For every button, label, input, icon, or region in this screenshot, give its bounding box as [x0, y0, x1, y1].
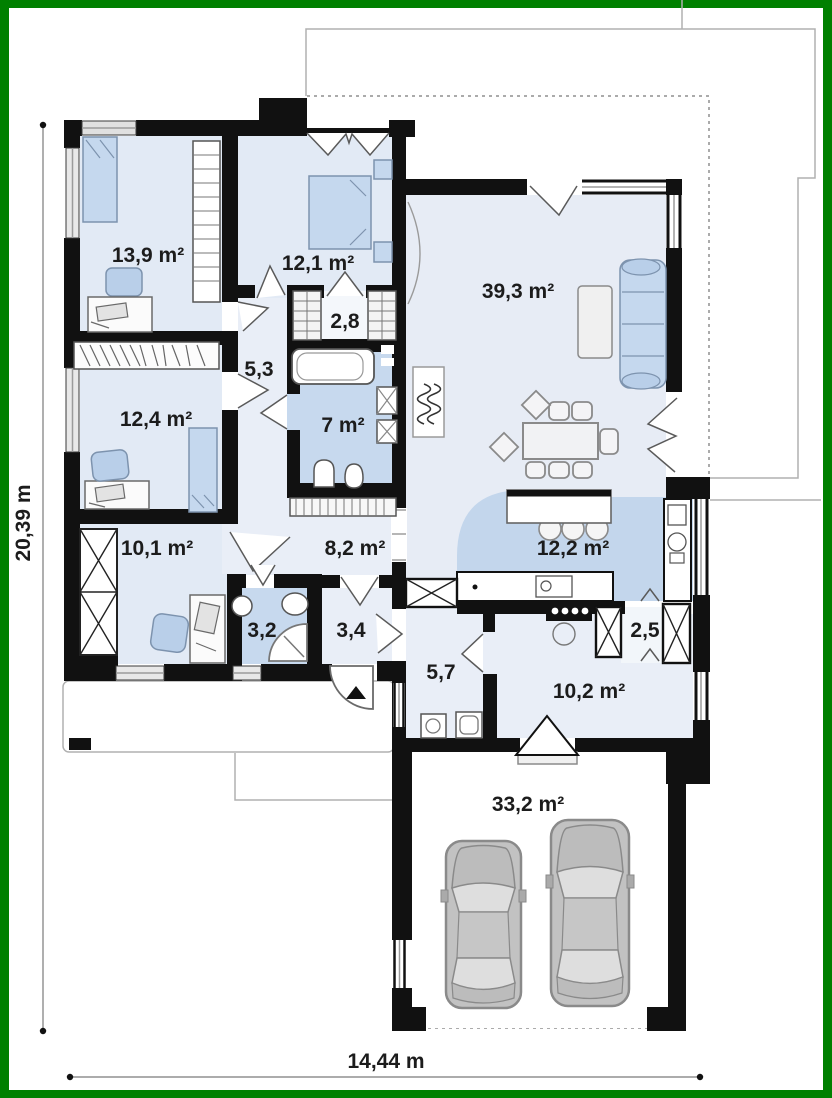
- svg-text:2,5: 2,5: [630, 619, 660, 642]
- svg-text:13,9 m²: 13,9 m²: [112, 244, 184, 267]
- svg-text:7 m²: 7 m²: [321, 414, 364, 437]
- svg-text:8,2 m²: 8,2 m²: [325, 537, 386, 560]
- svg-text:5,3: 5,3: [244, 358, 273, 381]
- svg-text:3,2: 3,2: [247, 619, 276, 642]
- svg-text:10,2 m²: 10,2 m²: [553, 680, 625, 703]
- svg-text:12,1 m²: 12,1 m²: [282, 252, 354, 275]
- svg-text:2,8: 2,8: [330, 310, 360, 333]
- svg-text:10,1 m²: 10,1 m²: [121, 537, 193, 560]
- svg-text:39,3 m²: 39,3 m²: [482, 280, 554, 303]
- svg-text:14,44 m: 14,44 m: [347, 1050, 424, 1073]
- svg-text:5,7: 5,7: [426, 661, 455, 684]
- svg-text:12,2 m²: 12,2 m²: [537, 537, 609, 560]
- svg-text:3,4: 3,4: [336, 619, 366, 642]
- svg-text:20,39 m: 20,39 m: [12, 484, 35, 561]
- svg-text:12,4 m²: 12,4 m²: [120, 408, 192, 431]
- svg-text:33,2 m²: 33,2 m²: [492, 793, 564, 816]
